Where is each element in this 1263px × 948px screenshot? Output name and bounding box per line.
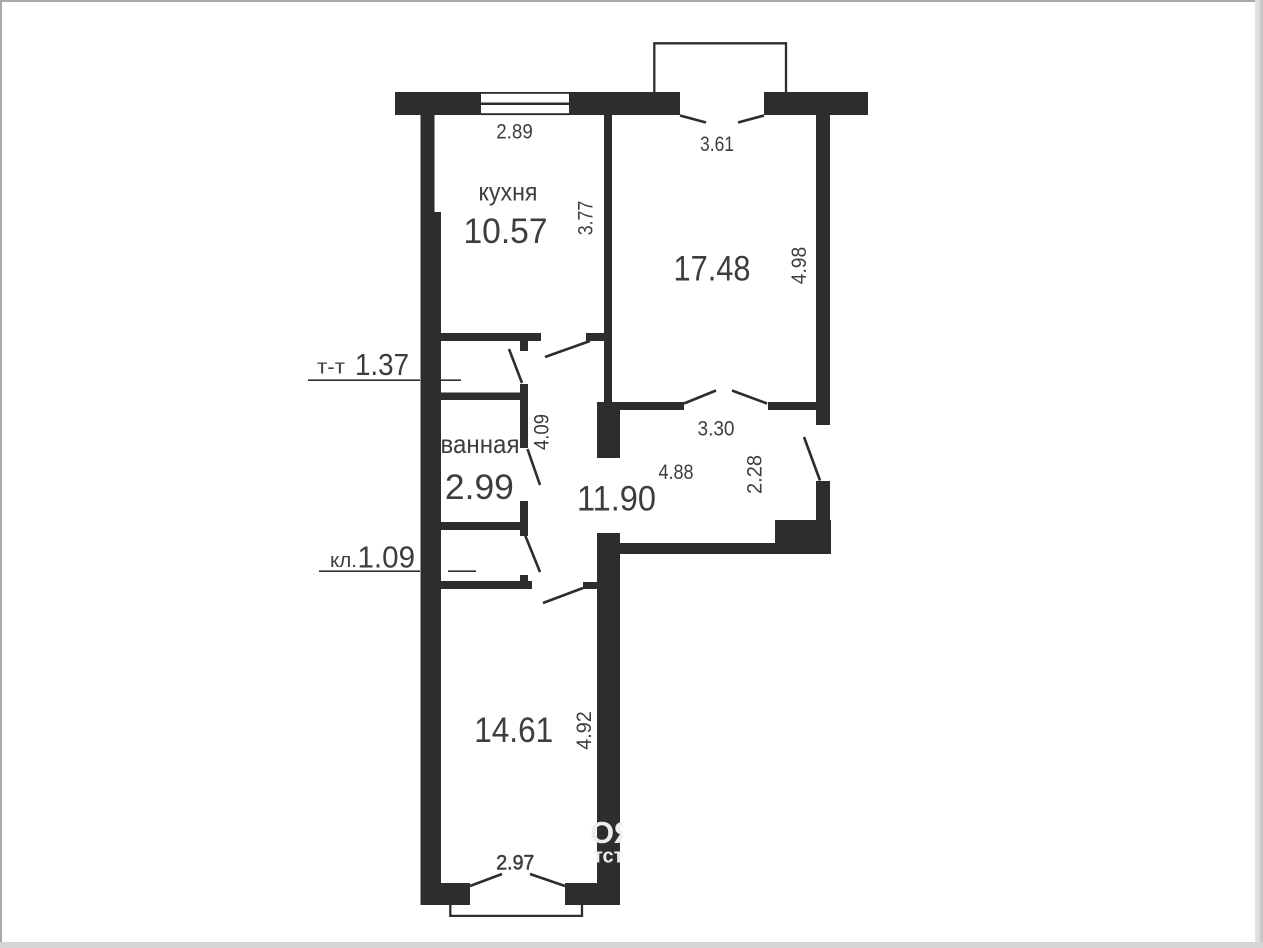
svg-text:10.57: 10.57	[464, 212, 548, 251]
svg-text:1.09: 1.09	[358, 540, 416, 575]
svg-text:2.89: 2.89	[496, 121, 533, 144]
svg-text:2.99: 2.99	[445, 468, 514, 507]
svg-text:4.98: 4.98	[788, 247, 811, 285]
svg-text:3.30: 3.30	[698, 418, 735, 441]
svg-text:тст: тст	[593, 846, 624, 868]
svg-text:кл.: кл.	[330, 550, 357, 572]
svg-text:2.97: 2.97	[496, 852, 534, 875]
svg-text:т-т: т-т	[317, 357, 345, 379]
svg-text:1.37: 1.37	[355, 347, 409, 382]
svg-text:3.61: 3.61	[700, 133, 734, 156]
svg-text:4.88: 4.88	[659, 461, 694, 484]
svg-text:14.61: 14.61	[474, 711, 553, 750]
svg-text:3.77: 3.77	[574, 201, 597, 236]
svg-text:2.28: 2.28	[744, 455, 767, 494]
svg-text:4.92: 4.92	[573, 711, 596, 750]
svg-text:17.48: 17.48	[674, 250, 751, 289]
svg-text:ванная: ванная	[441, 429, 520, 459]
svg-text:4.09: 4.09	[531, 414, 554, 450]
svg-text:11.90: 11.90	[577, 480, 656, 519]
svg-text:кухня: кухня	[479, 179, 538, 207]
